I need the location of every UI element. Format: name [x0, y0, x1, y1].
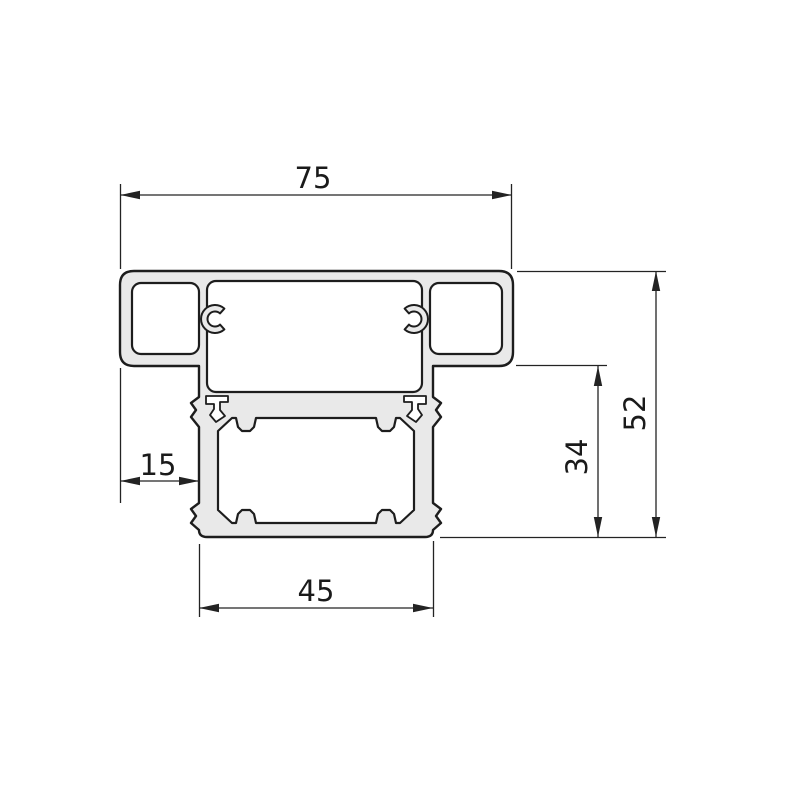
profile-cross-section-drawing: 75 15 45 52 34 [0, 0, 800, 800]
dimension-bottom-width: 45 [199, 541, 434, 617]
arrowhead-right [413, 604, 433, 612]
left-chamber [132, 283, 199, 354]
right-chamber [430, 283, 502, 354]
dimension-label: 15 [140, 448, 177, 482]
arrowhead-left [199, 604, 219, 612]
technical-drawing-canvas: 75 15 45 52 34 [0, 0, 800, 800]
dimension-label: 52 [618, 395, 652, 432]
dimension-label: 45 [298, 574, 335, 608]
arrowhead-top [652, 271, 660, 291]
arrowhead-top [594, 366, 602, 386]
arrowhead-right [179, 477, 199, 485]
dimension-left-flange-offset: 15 [120, 368, 199, 503]
bottom-chamber [218, 418, 414, 523]
profile-body [120, 271, 513, 537]
arrowhead-bottom [652, 517, 660, 537]
dimension-label: 75 [295, 161, 332, 195]
middle-chamber [207, 281, 422, 392]
arrowhead-right [492, 191, 512, 199]
dimension-lower-section-height: 34 [516, 366, 607, 538]
arrowhead-left [120, 191, 140, 199]
dimension-label: 34 [560, 439, 594, 476]
dimension-top-width: 75 [120, 161, 512, 269]
arrowhead-left [120, 477, 140, 485]
arrowhead-bottom [594, 517, 602, 537]
